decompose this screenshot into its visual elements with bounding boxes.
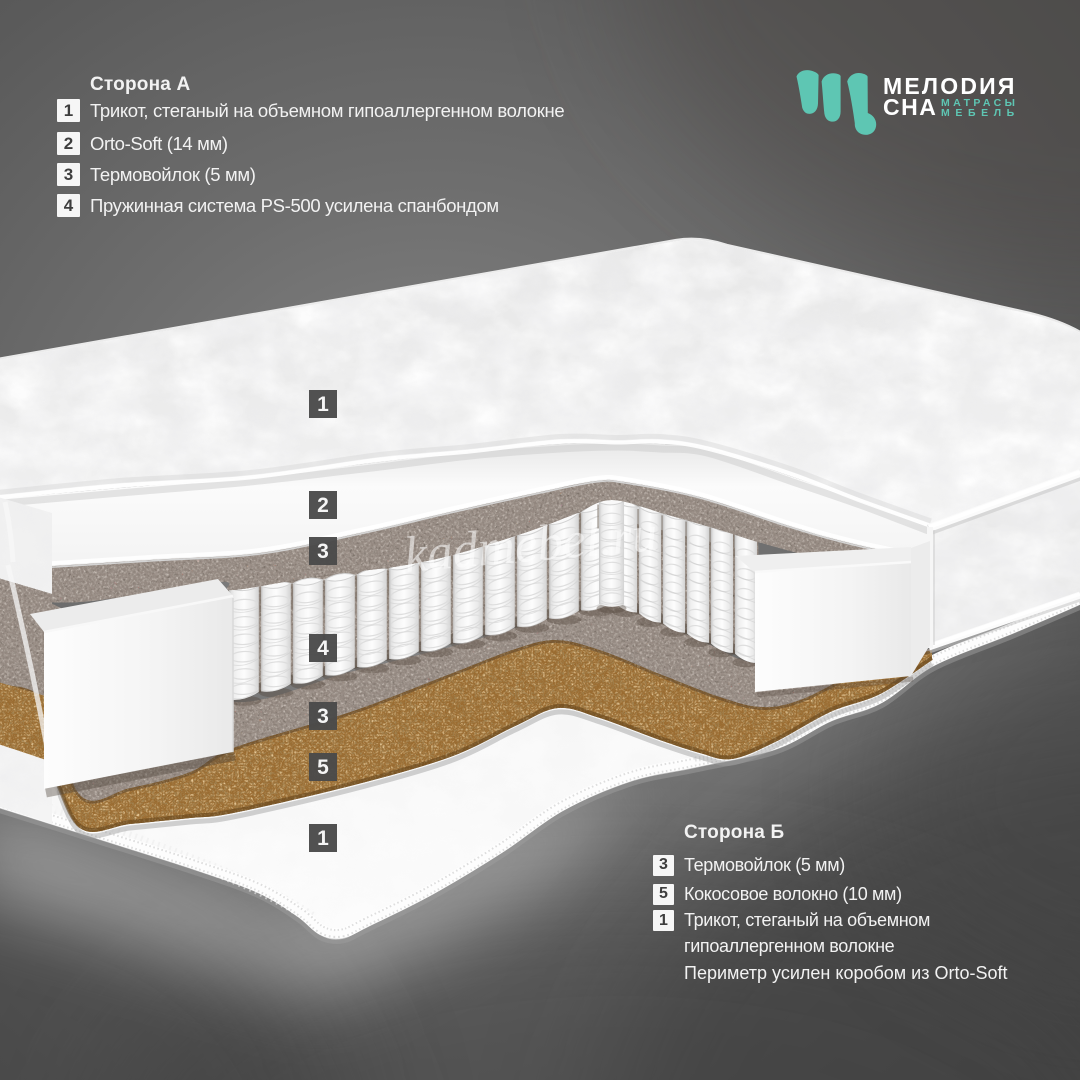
svg-text:3: 3 (317, 540, 329, 563)
svg-text:4: 4 (317, 637, 329, 660)
svg-text:2: 2 (317, 494, 329, 517)
svg-text:5: 5 (317, 756, 329, 779)
svg-text:1: 1 (317, 393, 329, 416)
svg-text:1: 1 (317, 827, 329, 850)
svg-text:3: 3 (317, 705, 329, 728)
